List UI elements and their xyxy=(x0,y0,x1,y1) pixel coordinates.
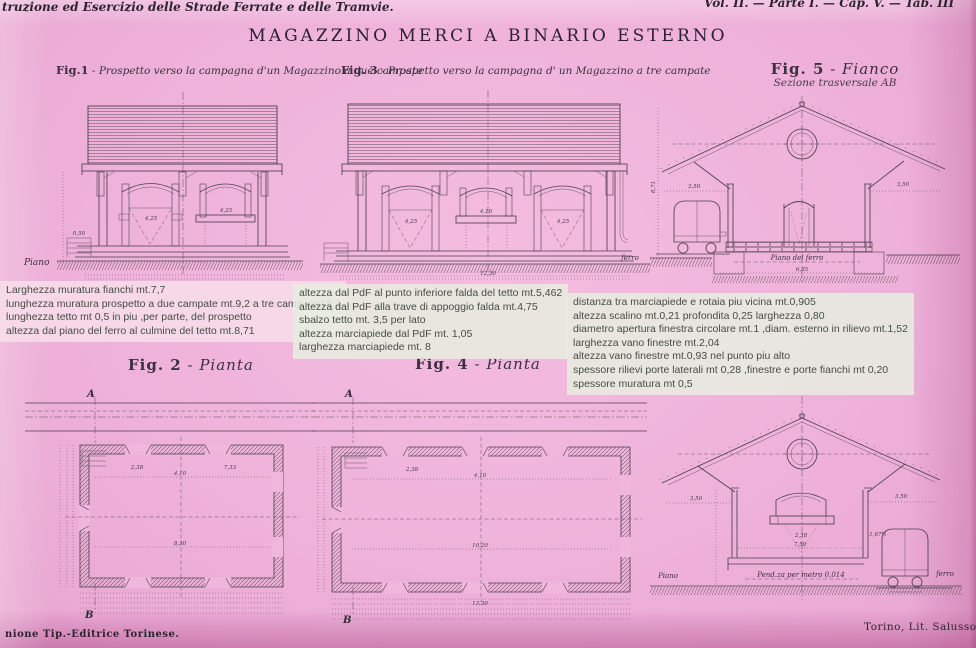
fig2-section-a: A xyxy=(86,389,95,400)
fig1-door-left: 4,25 xyxy=(119,184,182,247)
fig6-dim-left: 3,50 xyxy=(690,496,703,502)
footer-lithographer: Torino, Lit. Salussolia xyxy=(864,621,976,633)
fig3-elevation-drawing: 4,25 4,10 4,25 12,30 ferr xyxy=(320,86,655,281)
page-edge-shadow xyxy=(969,0,976,648)
plate-title: MAGAZZINO MERCI A BINARIO ESTERNO xyxy=(0,26,976,46)
fig3-dim-door-right: 4,25 xyxy=(556,219,570,225)
fig6-dim-window: 2,38 xyxy=(794,533,808,539)
fig3-window-middle: 4,10 xyxy=(456,188,516,248)
fig6-dim-width: 7,50 xyxy=(794,542,807,548)
fig3-dim-total: 12,30 xyxy=(480,271,496,277)
fig3-caption: Fig. 3 - Prospetto verso la campagna d' … xyxy=(341,63,711,77)
note-line: lunghezza muratura prospetto a due campa… xyxy=(6,298,340,312)
fig3-platform xyxy=(324,243,634,261)
note-line: spessore muratura mt 0,5 xyxy=(573,378,908,392)
fig1-ground xyxy=(57,261,303,270)
fig5-roof-struts xyxy=(694,161,904,189)
fig5-walls xyxy=(728,184,870,248)
fig4-dim-3: 10,20 xyxy=(472,543,488,549)
fig5-caption-text: - Fianco xyxy=(824,60,899,78)
note-line: Larghezza muratura fianchi mt.7,7 xyxy=(6,284,340,298)
fig3-dim-window: 4,10 xyxy=(479,209,493,215)
fig3-door-right: 4,25 xyxy=(534,186,591,251)
note-line: distanza tra marciapiede e rotaia piu vi… xyxy=(573,296,908,310)
fig2-dim-3: 8,30 xyxy=(174,541,187,547)
fig3-caption-id: Fig. 3 xyxy=(341,63,378,77)
note-line: sbalzo tetto mt. 3,5 per lato xyxy=(299,314,562,328)
fig4-plan-drawing: A B 2,38 4,10 10,20 13,30 xyxy=(312,387,647,627)
fig1-dim-door-left: 4,25 xyxy=(144,216,158,222)
fig6-roof-rafters xyxy=(660,414,940,485)
fig5-wagon xyxy=(656,201,730,254)
fig3-caption-text: - Prospetto verso la campagna d' un Maga… xyxy=(378,65,711,77)
fig1-roof xyxy=(82,106,282,175)
note-line: altezza scalino mt.0,21 profondita 0,25 … xyxy=(573,310,908,324)
notes-right-block: distanza tra marciapiede e rotaia piu vi… xyxy=(567,293,914,395)
fig4-dim-1: 2,38 xyxy=(405,467,419,473)
fig6-section-drawing: 2,38 3,50 3,50 7,50 1,67½ Pend.za per me… xyxy=(650,390,965,605)
note-line: altezza dal PdF alla trave di appoggio f… xyxy=(299,301,562,315)
fig5-caption-id: Fig. 5 xyxy=(771,60,825,78)
fig2-caption-id: Fig. 2 xyxy=(128,356,182,374)
fig3-dim-door-left: 4,25 xyxy=(404,219,418,225)
fig4-track-lines xyxy=(312,403,647,431)
fig6-wagon xyxy=(876,529,952,592)
scanned-plate: truzione ed Esercizio delle Strade Ferra… xyxy=(0,0,976,648)
note-line: altezza vano finestre mt.0,93 nel punto … xyxy=(573,350,908,364)
note-line: spessore rilievi porte laterali mt 0,28 … xyxy=(573,364,908,378)
fig2-dim-4: 7,33 xyxy=(224,465,237,471)
fig6-dim-right: 3,50 xyxy=(895,494,908,500)
fig6-platform xyxy=(728,558,868,570)
note-line: altezza marciapiede dal PdF mt. 1,05 xyxy=(299,328,562,342)
fig1-caption-id: Fig.1 xyxy=(56,63,89,77)
fig5-dim-right: 3,50 xyxy=(897,182,910,188)
note-line: altezza dal piano del ferro al culmine d… xyxy=(6,325,340,339)
fig6-left-label: Piano xyxy=(657,572,678,580)
fig6-right-label: ferro xyxy=(935,570,954,578)
fig1-window-right: 4,25 xyxy=(196,184,255,244)
fig5-section-drawing: 3,50 3,50 8,71 6,85 Piano del ferro xyxy=(650,92,960,287)
fig3-roof xyxy=(342,104,627,175)
fig5-dim-width: 6,85 xyxy=(796,267,809,273)
fig6-roof-struts xyxy=(698,464,905,492)
fig2-section-b: B xyxy=(84,610,93,621)
fig4-section-a: A xyxy=(344,389,353,400)
fig3-ground-label: ferro xyxy=(620,254,639,262)
fig3-downspout xyxy=(620,171,628,243)
fig6-slope-label: Pend.za per metro 0,014 xyxy=(756,571,844,579)
footer-publisher: nione Tip.-Editrice Torinese. xyxy=(5,629,179,640)
fig1-platform: 0,50 xyxy=(67,231,290,257)
fig1-dim-window: 4,25 xyxy=(219,208,233,214)
fig5-caption: Fig. 5 - Fianco xyxy=(735,60,935,78)
fig3-eaves-brackets xyxy=(356,171,613,195)
note-line: larghezza marciapiede mt. 8 xyxy=(299,341,562,355)
fig3-door-left: 4,25 xyxy=(382,186,439,251)
fig2-dim-2: 4,10 xyxy=(173,471,187,477)
header-volume-ref: Vol. II. — Parte I. — Cap. V. — Tab. III xyxy=(704,0,954,10)
fig4-dim-2: 4,10 xyxy=(473,473,487,479)
fig2-dimension-rows xyxy=(60,445,283,613)
fig2-dim-1: 2,38 xyxy=(130,465,144,471)
fig2-caption: Fig. 2 - Pianta xyxy=(128,356,254,374)
note-line: lunghezza tetto mt 0,5 in piu ,per parte… xyxy=(6,311,340,325)
fig5-door xyxy=(784,202,814,247)
fig2-caption-text: - Pianta xyxy=(182,356,254,374)
fig4-interior-dimensions: 2,38 4,10 10,20 13,30 xyxy=(322,437,642,607)
note-line: diametro apertura finestra circolare mt.… xyxy=(573,323,908,337)
fig1-corner-pilasters xyxy=(99,172,266,246)
fig1-dim-steps: 0,50 xyxy=(73,231,86,237)
fig5-dim-left: 3,50 xyxy=(688,184,701,190)
fig5-dim-height: 8,71 xyxy=(651,181,657,193)
header-series-title: truzione ed Esercizio delle Strade Ferra… xyxy=(2,0,394,14)
fig2-plan-drawing: A B 2,38 4,10 8,30 7,33 xyxy=(25,387,315,622)
fig4-section-b: B xyxy=(342,615,351,626)
fig2-track-lines xyxy=(25,403,315,431)
fig1-elevation-drawing: 4,25 4,25 0,50 xyxy=(55,86,305,281)
fig5-rail-level-label: Piano del ferro xyxy=(770,254,824,262)
fig5-subcaption: Sezione trasversale AB xyxy=(735,77,935,89)
note-line: larghezza vano finestre mt.2,04 xyxy=(573,337,908,351)
note-line: altezza dal PdF al punto inferiore falda… xyxy=(299,287,562,301)
notes-middle-block: altezza dal PdF al punto inferiore falda… xyxy=(293,284,568,359)
fig5-roof-rafters xyxy=(660,102,945,174)
fig1-ground-label: Piano xyxy=(24,258,50,268)
fig6-ground xyxy=(650,586,962,595)
